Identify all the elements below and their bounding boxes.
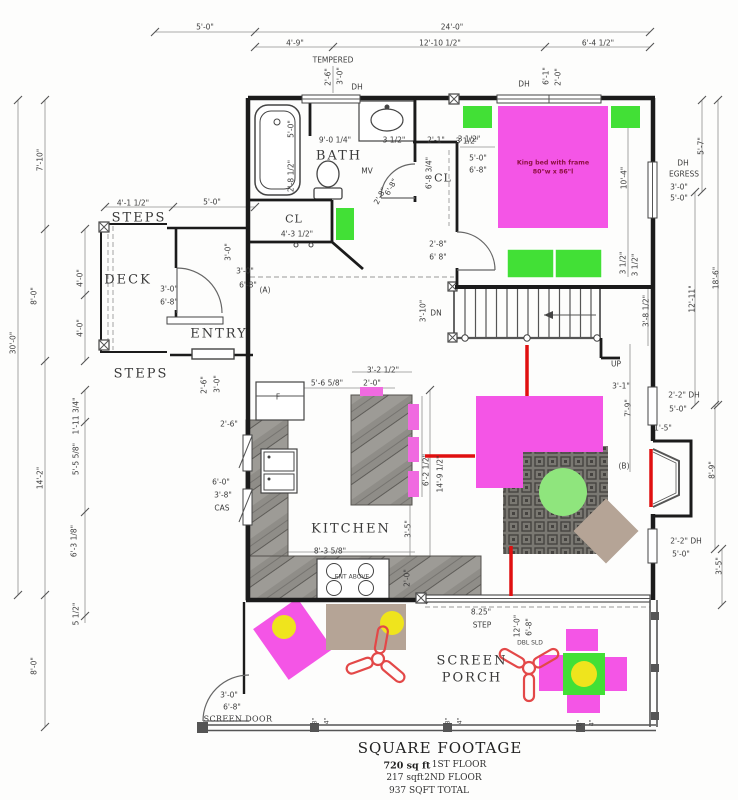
- dim-label: 3'-1": [612, 382, 630, 391]
- dim-label: 6'-8": [469, 166, 487, 175]
- dim-label: 3'-0": [224, 243, 233, 261]
- dim-label: 2'-1": [427, 136, 445, 145]
- room-label-screen-porch: PORCH: [442, 671, 502, 686]
- dim-label: 3 1/2": [619, 252, 628, 275]
- dim-label: 6'-8": [223, 703, 241, 712]
- dim-label: 14'-2": [36, 467, 45, 490]
- dim-label: 8'-9": [708, 461, 717, 479]
- dim-label: 7'-9": [624, 399, 633, 417]
- dim-label: 6'-3 1/8": [70, 525, 79, 557]
- dim-label: 4'-9": [286, 39, 304, 48]
- dim-label: 6'-0": [212, 478, 230, 487]
- dim-label: 5'-6 5/8": [311, 379, 343, 388]
- dim-label: 1'-11 3/4": [72, 398, 81, 435]
- room-label-closet-1: CL: [285, 213, 303, 226]
- king-bed-note-line2: 80"w x 86"l: [533, 169, 574, 176]
- dim-label: 3'-8 1/2": [642, 295, 651, 327]
- dim-label: 6'-8 3/4": [425, 157, 434, 189]
- dim-label: 3'-0": [213, 375, 222, 393]
- dim-label: 6'-1": [542, 67, 551, 85]
- dim-label: DH: [677, 159, 688, 168]
- dim-label: ENT ABOVE: [335, 574, 369, 581]
- dim-label: 3'-5": [715, 557, 724, 575]
- total-sqft: 937 SQFT TOTAL: [389, 786, 469, 796]
- room-label-closet-2: CL: [434, 172, 452, 185]
- dim-label: 10'-4": [620, 167, 629, 190]
- room-label-deck: DECK: [104, 273, 152, 288]
- dim-label: F: [276, 393, 280, 402]
- dim-label: 5'-0": [672, 550, 690, 559]
- screen-door-label: SCREEN DOOR: [204, 715, 273, 724]
- dim-label: 6'-4 1/2": [582, 39, 614, 48]
- dim-label: 5'-0": [669, 405, 687, 414]
- dim-label: 8.25": [471, 608, 491, 617]
- dim-label: 4": [324, 718, 331, 725]
- dim-label: UP: [611, 360, 621, 369]
- dim-label: 3'-0": [160, 285, 178, 294]
- dim-label: DBL SLD: [517, 640, 543, 647]
- dim-label: 4'-3 1/2": [281, 230, 313, 239]
- dim-label: 2'-0": [363, 379, 381, 388]
- dim-label: 5'-0": [287, 120, 296, 138]
- dim-label: 2'-2" DH: [670, 537, 702, 546]
- labels-layer: 5'-0"24'-0"4'-9"12'-10 1/2"6'-4 1/2"TEMP…: [0, 0, 738, 800]
- dim-label: 2'-6": [324, 68, 333, 86]
- dim-label: 12'-10 1/2": [419, 39, 461, 48]
- dim-label: 2'-2" DH: [668, 391, 700, 400]
- dim-label: 3'-8": [214, 491, 232, 500]
- dim-label: 2'-6": [200, 376, 209, 394]
- dim-label: CAS: [214, 504, 229, 513]
- dim-label: 12'-0": [513, 615, 522, 638]
- second-floor-sqft: 217 sqft: [386, 773, 423, 783]
- dim-label: 3'-0": [670, 183, 688, 192]
- dim-label: DH: [518, 80, 529, 89]
- floor-plan: 5'-0"24'-0"4'-9"12'-10 1/2"6'-4 1/2"TEMP…: [0, 0, 738, 800]
- dim-label: 3 1/2": [456, 137, 479, 146]
- dim-label: 5'-0": [670, 194, 688, 203]
- dim-label: 2'-0": [403, 569, 412, 587]
- dim-label: 5'-0": [196, 23, 214, 32]
- dim-label: 6'-2 1/2": [422, 454, 431, 486]
- dim-label: 3'-0": [236, 267, 254, 276]
- dim-label: 6'-8": [160, 298, 178, 307]
- dim-label: 8'-3 5/8": [314, 547, 346, 556]
- dim-label: 1'-5": [654, 424, 672, 433]
- first-floor-sqft: 720 sq ft: [384, 761, 431, 772]
- dim-label: 30'-0": [9, 332, 18, 355]
- dim-label: 4'-0": [76, 319, 85, 337]
- dim-label: 7'-10": [36, 149, 45, 172]
- dim-label: 4": [589, 720, 596, 727]
- dim-label: 3'-10": [419, 300, 428, 323]
- dim-label: 8'-0": [30, 287, 39, 305]
- dim-label: 2'-8": [429, 240, 447, 249]
- dim-label: STEP: [473, 621, 492, 630]
- dim-label: 3'-0": [220, 691, 238, 700]
- dim-label: 8": [445, 718, 452, 725]
- dim-label: 3'-5": [404, 520, 413, 538]
- dim-label: 5'-7": [697, 137, 706, 155]
- room-label-kitchen: KITCHEN: [311, 522, 391, 537]
- dim-label: 4": [457, 718, 464, 725]
- dim-label: 3 1/2": [383, 136, 406, 145]
- dim-label: 12'-11": [688, 285, 697, 312]
- dim-label: DH: [351, 83, 362, 92]
- dim-label: 2'-8 1/2": [287, 160, 296, 192]
- dim-label: 4'-0": [76, 269, 85, 287]
- dim-label: 6'-8": [525, 618, 534, 636]
- dim-label: (A): [260, 286, 271, 295]
- dim-label: 8": [312, 718, 319, 725]
- dim-label: 5'-0": [203, 198, 221, 207]
- king-bed-note-line1: King bed with frame: [517, 160, 589, 167]
- dim-label: DN: [430, 309, 441, 318]
- dim-label: 4'-1 1/2": [117, 199, 149, 208]
- room-label-steps-top: STEPS: [112, 211, 167, 226]
- dim-label: 2'-6": [220, 420, 238, 429]
- dim-label: 3'-2 1/2": [367, 366, 399, 375]
- dim-label: 14'-9 1/2": [436, 456, 445, 493]
- dim-label: 6'-8": [239, 281, 257, 290]
- dim-label: 5 1/2": [72, 603, 81, 626]
- room-label-entry: ENTRY: [190, 327, 248, 342]
- second-floor-label: 2ND FLOOR: [424, 773, 481, 783]
- dim-label: 6'-8": [383, 177, 399, 197]
- dim-label: 6' 8": [429, 253, 446, 262]
- dim-label: 3 1/2": [631, 254, 640, 277]
- room-label-bath: BATH: [316, 149, 362, 164]
- dim-label: EGRESS: [669, 170, 699, 179]
- room-label-steps-bottom: STEPS: [114, 367, 169, 382]
- dim-label: 9'-0 1/4": [319, 136, 351, 145]
- dim-label: 18'-6": [712, 267, 721, 290]
- dim-label: MV: [361, 167, 373, 176]
- dim-label: 24'-0": [441, 23, 464, 32]
- dim-label: 5'-0": [469, 154, 487, 163]
- dim-label: (B): [619, 462, 630, 471]
- square-footage-title: SQUARE FOOTAGE: [358, 739, 523, 757]
- dim-label: 8'-0": [30, 657, 39, 675]
- dim-label: 3'-0": [336, 67, 345, 85]
- first-floor-label: 1ST FLOOR: [432, 760, 487, 770]
- dim-label: 2'-0": [554, 68, 563, 86]
- dim-label: 8": [577, 720, 584, 727]
- room-label-screen-porch: SCREEN: [437, 654, 508, 669]
- dim-label: TEMPERED: [313, 56, 354, 65]
- dim-label: 5'-5 5/8": [72, 443, 81, 475]
